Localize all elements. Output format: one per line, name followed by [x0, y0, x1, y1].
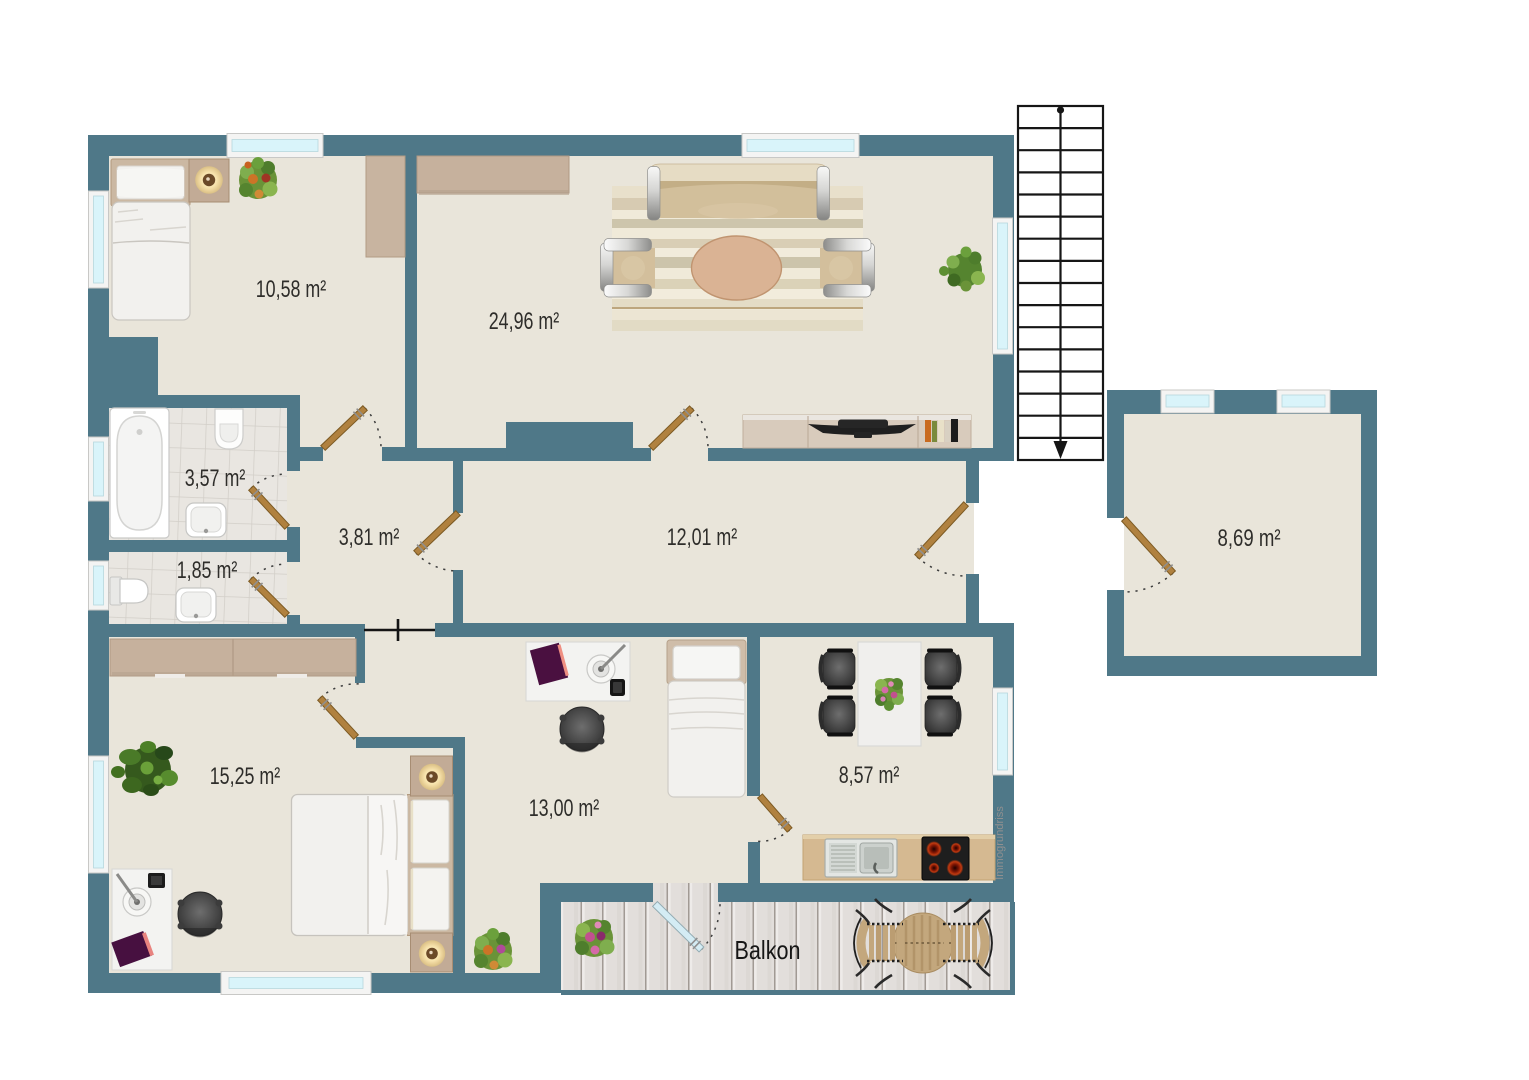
svg-text:Immogrundriss: Immogrundriss	[994, 806, 1006, 880]
svg-text:8,57 m²: 8,57 m²	[839, 763, 900, 789]
svg-text:3,81 m²: 3,81 m²	[339, 525, 400, 551]
svg-text:1,85 m²: 1,85 m²	[177, 558, 238, 584]
svg-text:12,01 m²: 12,01 m²	[667, 525, 738, 551]
svg-text:3,57 m²: 3,57 m²	[185, 466, 246, 492]
svg-text:10,58 m²: 10,58 m²	[256, 277, 327, 303]
svg-text:13,00 m²: 13,00 m²	[529, 796, 600, 822]
svg-text:24,96 m²: 24,96 m²	[489, 309, 560, 335]
svg-text:8,69 m²: 8,69 m²	[1217, 525, 1280, 552]
svg-text:15,25 m²: 15,25 m²	[210, 764, 281, 790]
svg-text:Balkon: Balkon	[735, 936, 801, 965]
